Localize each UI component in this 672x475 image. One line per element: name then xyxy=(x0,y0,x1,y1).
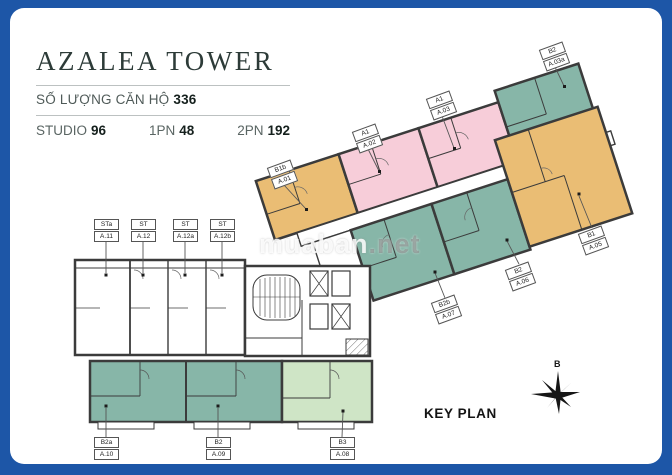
bottom-wing xyxy=(90,361,372,429)
watermark: muaban.net xyxy=(259,229,421,260)
key-plan-label: KEY PLAN xyxy=(424,406,497,421)
unit-tag-A09: B2A.09 xyxy=(206,437,231,460)
page: { "frame": { "border_color": "#1d56a7", … xyxy=(0,0,672,475)
watermark-suffix: .net xyxy=(369,229,421,259)
divider xyxy=(36,85,290,86)
stat-2pn: 2PN192 xyxy=(237,123,290,138)
divider xyxy=(36,115,290,116)
compass-north-label: B xyxy=(554,359,561,369)
stat-studio: STUDIO96 xyxy=(36,123,106,138)
unit-tag-A11: STaA.11 xyxy=(94,219,119,242)
unit-tag-A10: B2aA.10 xyxy=(94,437,119,460)
page-title: AZALEA TOWER xyxy=(36,46,290,77)
entrance-hatch xyxy=(346,339,368,355)
unit-tag-A08: B3A.08 xyxy=(330,437,355,460)
units-count-value: 336 xyxy=(173,92,196,107)
unit-mix-stats: STUDIO96 1PN48 2PN192 xyxy=(36,123,290,138)
unit-tag-A12a: STA.12a xyxy=(173,219,198,242)
plan-sheet: AZALEA TOWER SỐ LƯỢNG CĂN HỘ336 STUDIO96… xyxy=(10,8,662,464)
unit-A08-B3 xyxy=(282,361,372,422)
header: AZALEA TOWER SỐ LƯỢNG CĂN HỘ336 STUDIO96… xyxy=(36,46,290,138)
stat-1pn: 1PN48 xyxy=(149,123,194,138)
unit-tag-A12: STA.12 xyxy=(131,219,156,242)
watermark-main: muaban xyxy=(259,229,369,259)
units-count: SỐ LƯỢNG CĂN HỘ336 xyxy=(36,92,290,107)
core-block xyxy=(245,266,370,356)
units-count-label: SỐ LƯỢNG CĂN HỘ xyxy=(36,92,169,107)
unit-tag-A12b: STA.12b xyxy=(210,219,235,242)
compass-icon xyxy=(531,371,580,414)
studio-wing xyxy=(75,260,245,355)
